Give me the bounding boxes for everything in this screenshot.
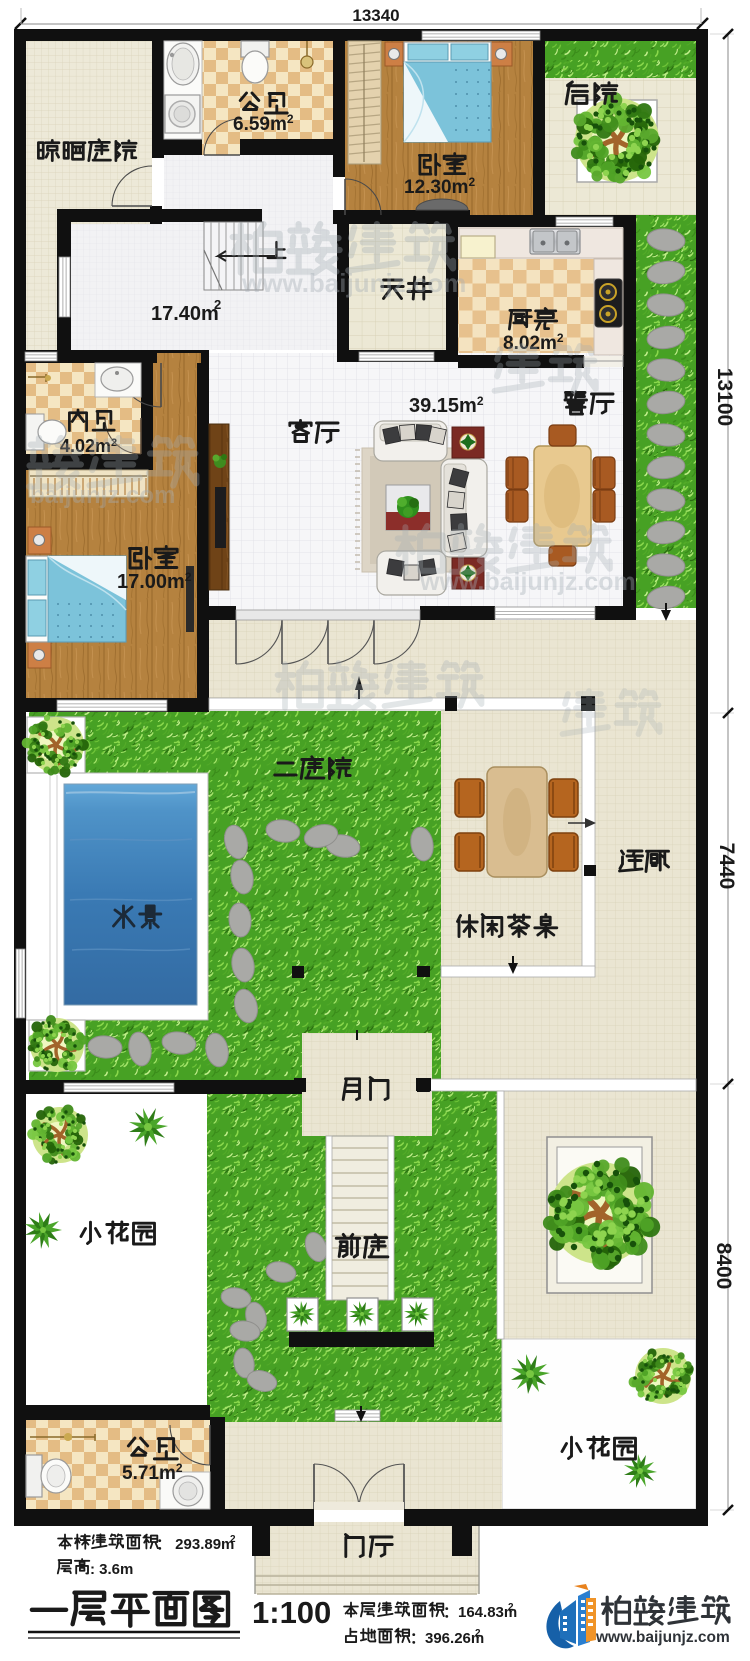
svg-text:13100: 13100 <box>713 368 736 426</box>
svg-text:：396.26m: ：396.26m <box>410 1630 484 1647</box>
svg-text:www.baijunjz.com: www.baijunjz.com <box>419 568 636 596</box>
svg-text:8400: 8400 <box>712 1243 735 1290</box>
svg-text:13340: 13340 <box>352 6 399 25</box>
svg-text:12.30m2: 12.30m2 <box>404 175 475 198</box>
svg-text:：164.83m: ：164.83m <box>443 1604 517 1621</box>
svg-text:2: 2 <box>214 297 221 312</box>
svg-text:17.40m: 17.40m <box>151 303 219 325</box>
svg-text:baijunjz.com: baijunjz.com <box>30 482 175 509</box>
svg-text:2: 2 <box>475 1628 481 1639</box>
svg-text:39.15m2: 39.15m2 <box>409 394 484 417</box>
svg-text:1:100: 1:100 <box>252 1595 331 1630</box>
svg-text:2: 2 <box>230 1534 236 1545</box>
svg-text:www.baijunjz.com: www.baijunjz.com <box>595 1629 730 1646</box>
svg-text:6.59m2: 6.59m2 <box>233 112 294 135</box>
svg-text:： 293.89m: ： 293.89m <box>156 1536 234 1553</box>
svg-text:5.71m2: 5.71m2 <box>122 1461 183 1484</box>
svg-text:www.baijunjz.com: www.baijunjz.com <box>241 268 466 298</box>
svg-text:: 3.6m: : 3.6m <box>90 1561 133 1578</box>
svg-text:7440: 7440 <box>715 843 738 890</box>
svg-text:2: 2 <box>508 1602 514 1613</box>
svg-text:17.00m2: 17.00m2 <box>117 570 192 593</box>
